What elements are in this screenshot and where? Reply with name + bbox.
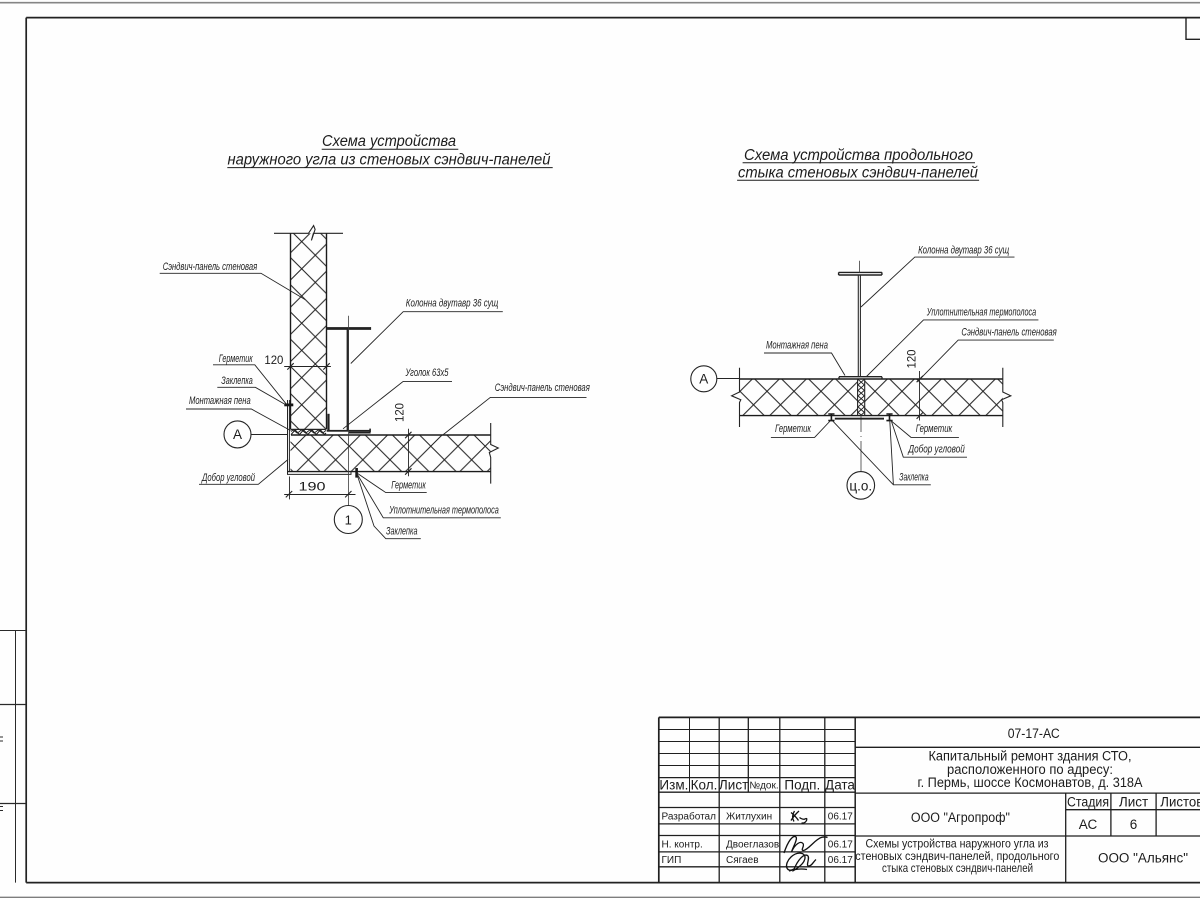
svg-text:Герметик: Герметик	[219, 353, 254, 365]
svg-text:1: 1	[345, 513, 352, 528]
svg-text:№док.: №док.	[749, 781, 778, 792]
svg-text:Уплотнительная термополоса: Уплотнительная термополоса	[926, 307, 1036, 319]
svg-text:Монтажная пена: Монтажная пена	[766, 340, 828, 352]
svg-text:Уплотнительная термополоса: Уплотнительная термополоса	[389, 505, 499, 517]
svg-text:стыка стеновых сэндвич-панелей: стыка стеновых сэндвич-панелей	[882, 861, 1033, 875]
svg-text:Житлухин: Житлухин	[726, 812, 772, 823]
svg-text:120: 120	[264, 353, 283, 367]
svg-text:Колонна двутавр 36 сущ: Колонна двутавр 36 сущ	[406, 298, 499, 310]
svg-text:Н. контр.: Н. контр.	[662, 840, 703, 851]
svg-text:Лист: Лист	[719, 777, 748, 792]
svg-text:Уголок 63х5: Уголок 63х5	[405, 367, 449, 379]
svg-text:наружного угла из стеновых сэн: наружного угла из стеновых сэндвич-панел…	[228, 152, 551, 169]
svg-text:стыка стеновых сэндвич-панелей: стыка стеновых сэндвич-панелей	[738, 164, 978, 181]
svg-text:Добор угловой: Добор угловой	[907, 443, 965, 455]
svg-text:Герметик: Герметик	[391, 480, 426, 492]
svg-text:Разработал: Разработал	[662, 811, 717, 823]
svg-text:Заклепка: Заклепка	[899, 472, 928, 484]
svg-text:190: 190	[299, 480, 326, 494]
svg-text:Монтажная пена: Монтажная пена	[189, 395, 251, 407]
svg-text:Листов: Листов	[1160, 794, 1200, 809]
svg-text:ООО "Альянс": ООО "Альянс"	[1098, 851, 1188, 866]
svg-text:06.17: 06.17	[828, 840, 853, 851]
svg-text:Подп.: Подп.	[784, 777, 820, 792]
svg-text:Добор угловой: Добор угловой	[201, 472, 255, 484]
svg-text:Двоеглазов: Двоеглазов	[726, 840, 779, 851]
svg-text:Герметик: Герметик	[775, 423, 812, 435]
svg-text:Заклепка: Заклепка	[386, 526, 418, 538]
svg-text:Сэндвич-панель стеновая: Сэндвич-панель стеновая	[961, 327, 1056, 339]
svg-text:Колонна двутавр 36 сущ: Колонна двутавр 36 сущ	[918, 244, 1009, 256]
svg-text:Схема устройства продольного: Схема устройства продольного	[744, 147, 973, 164]
svg-text:ООО "Агропроф": ООО "Агропроф"	[911, 810, 1010, 825]
svg-text:ц.о.: ц.о.	[849, 478, 872, 493]
svg-text:Лист: Лист	[1119, 794, 1148, 809]
svg-text:06.17: 06.17	[828, 855, 853, 866]
svg-text:Сягаев: Сягаев	[726, 855, 759, 866]
svg-text:Изм.: Изм.	[659, 777, 688, 792]
svg-text:6: 6	[1130, 817, 1138, 832]
svg-text:07-17-АС: 07-17-АС	[1008, 726, 1060, 741]
svg-text:Дата: Дата	[825, 777, 855, 792]
svg-text:Кол.: Кол.	[691, 777, 718, 792]
svg-text:ГИП: ГИП	[662, 855, 682, 866]
svg-text:Заклепка: Заклепка	[221, 375, 253, 387]
svg-text:Сэндвич-панель стеновая: Сэндвич-панель стеновая	[495, 382, 590, 394]
svg-text:Схема устройства: Схема устройства	[322, 133, 456, 150]
svg-text:06.17: 06.17	[828, 812, 853, 823]
svg-text:А: А	[233, 427, 242, 442]
svg-text:Сэндвич-панель стеновая: Сэндвич-панель стеновая	[163, 261, 258, 273]
svg-text:Стадия: Стадия	[1067, 794, 1109, 809]
svg-text:120: 120	[905, 349, 919, 368]
svg-text:АС: АС	[1079, 817, 1098, 832]
svg-text:А: А	[699, 372, 708, 387]
svg-text:Герметик: Герметик	[916, 423, 953, 435]
svg-text:г. Пермь, шоссе Космонавтов, д: г. Пермь, шоссе Космонавтов, д. 318А	[918, 775, 1143, 790]
svg-text:120: 120	[393, 403, 407, 422]
